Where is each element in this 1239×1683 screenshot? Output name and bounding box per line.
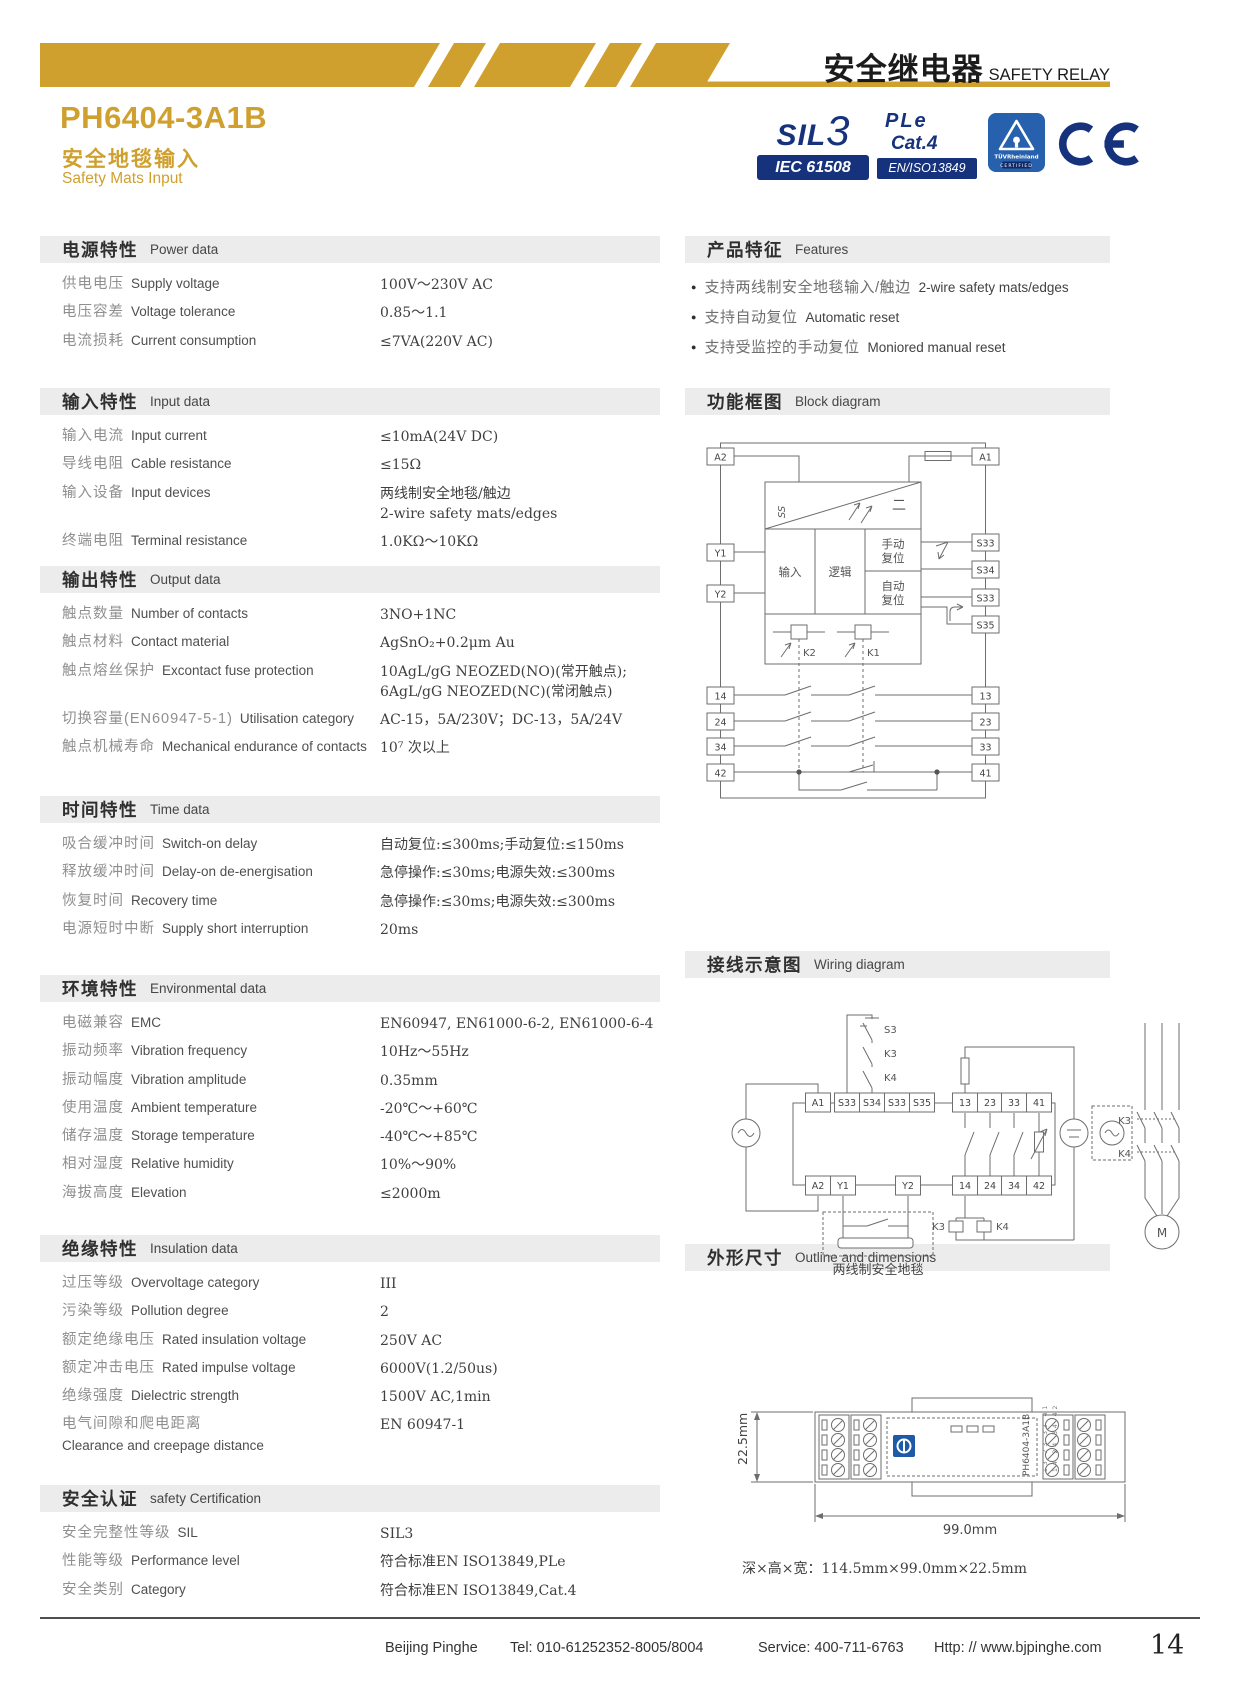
terminal-s35: S35 (913, 1098, 931, 1109)
spec-label-cn: 振动频率 (62, 1043, 124, 1059)
spec-label-en: Cable resistance (131, 456, 232, 471)
spec-label: 触点熔丝保护Excontact fuse protection (62, 662, 380, 680)
spec-label: 振动频率Vibration frequency (62, 1042, 380, 1060)
dimension-note: 深×高×宽：114.5mm×99.0mm×22.5mm (742, 1558, 1027, 1578)
spec-label-cn: 安全类别 (62, 1582, 124, 1598)
footer-website: Http: // www.bjpinghe.com (934, 1640, 1102, 1656)
block-diagram-header: 功能框图 Block diagram (685, 388, 1110, 415)
terminal-y1: Y1 (836, 1181, 849, 1192)
terminal-41: 41 (1033, 1098, 1045, 1109)
spec-label-cn: 电气间隙和爬电距离 (62, 1416, 202, 1432)
spec-row: 污染等级Pollution degree2 (62, 1302, 660, 1322)
height-dimension-label: 22.5mm (735, 1413, 750, 1465)
terminal-23: 23 (979, 718, 991, 729)
spec-label-en: Recovery time (131, 893, 217, 908)
spec-label-cn: 触点熔丝保护 (62, 663, 155, 679)
spec-label-en: Dielectric strength (131, 1388, 239, 1403)
terminal-33: 33 (1008, 1098, 1020, 1109)
spec-label: 振动幅度Vibration amplitude (62, 1071, 380, 1089)
spec-row: 终端电阻Terminal resistance1.0KΩ～10KΩ (62, 532, 660, 552)
terminal-s34: S34 (863, 1098, 881, 1109)
spec-label-cn: 污染等级 (62, 1303, 124, 1319)
spec-label: 安全类别Category (62, 1581, 380, 1599)
wiring-k3-right-label: K3 (1118, 1116, 1131, 1127)
spec-label: 供电电压Supply voltage (62, 275, 380, 293)
spec-row: 电源短时中断Supply short interruption20ms (62, 920, 660, 940)
wiring-k4-right-label: K4 (1118, 1149, 1131, 1160)
spec-row: 振动频率Vibration frequency10Hz～55Hz (62, 1042, 660, 1062)
spec-label-en: Input current (131, 428, 207, 443)
spec-label: 电流损耗Current consumption (62, 332, 380, 350)
spec-label-cn: 振动幅度 (62, 1072, 124, 1088)
terminal-a2: A2 (812, 1181, 825, 1192)
footer-divider (40, 1617, 1200, 1619)
spec-label-cn: 海拔高度 (62, 1185, 124, 1201)
section-title-en: Output data (150, 572, 221, 587)
spec-label-en: Number of contacts (131, 606, 248, 621)
feature-item: ●支持受监控的手动复位Moniored manual reset (691, 336, 1110, 357)
spec-value: 20ms (380, 920, 660, 940)
feature-text-en: 2-wire safety mats/edges (919, 280, 1069, 295)
spec-value: 0.85～1.1 (380, 303, 660, 323)
features-header: 产品特征 Features (685, 236, 1110, 263)
section-title-en: Time data (150, 802, 210, 817)
terminal-33: 33 (979, 743, 991, 754)
spec-label: 性能等级Performance level (62, 1552, 380, 1570)
spec-value: AC-15，5A/230V；DC-13，5A/24V (380, 710, 660, 730)
section-title-cn: 安全认证 (62, 1486, 138, 1511)
sil-word: SIL (776, 119, 826, 153)
terminal-24: 24 (984, 1181, 996, 1192)
spec-row: 电压容差Voltage tolerance0.85～1.1 (62, 303, 660, 323)
spec-label-cn: 安全完整性等级 (62, 1525, 171, 1541)
section-header: 安全认证 safety Certification (40, 1485, 660, 1512)
feature-item: ●支持自动复位Automatic reset (691, 306, 1110, 327)
spec-value: ≤10mA(24V DC) (380, 427, 660, 447)
spec-row: 海拔高度Elevation≤2000m (62, 1184, 660, 1204)
terminal-23: 23 (984, 1098, 996, 1109)
terminal-34: 34 (1008, 1181, 1020, 1192)
spec-label-cn: 相对湿度 (62, 1156, 124, 1172)
terminal-13: 13 (979, 692, 991, 703)
sil3-text: SIL 3 (757, 112, 869, 153)
features-title-en: Features (795, 242, 848, 257)
section-title-en: Environmental data (150, 981, 266, 996)
wiring-diagram: S3 K3 K4 K3 K4 K3 K4 M 两线制安全地毯 A1 S33 S3… (690, 985, 1190, 1290)
spec-row: 安全类别Category符合标准EN ISO13849,Cat.4 (62, 1581, 660, 1601)
spec-column: 电源特性 Power data 供电电压Supply voltage100V～2… (40, 0, 660, 1683)
terminal-s33: S33 (838, 1098, 856, 1109)
relay-k1-label: K1 (867, 648, 880, 659)
spec-label-en: Supply voltage (131, 276, 220, 291)
spec-label-cn: 吸合缓冲时间 (62, 836, 155, 852)
width-dimension-label: 99.0mm (943, 1523, 997, 1538)
spec-label-en: Vibration amplitude (131, 1072, 246, 1087)
terminal-42: 42 (714, 769, 726, 780)
section-title-cn: 输出特性 (62, 567, 138, 592)
spec-value: 急停操作:≤30ms;电源失效:≤300ms (380, 863, 660, 883)
spec-value: 自动复位:≤300ms;手动复位:≤150ms (380, 835, 660, 855)
spec-label-en: Pollution degree (131, 1303, 229, 1318)
spec-label: 触点数量Number of contacts (62, 605, 380, 623)
spec-label: 切换容量(EN60947-5-1)Utilisation category (62, 710, 380, 728)
tuv-rheinland-badge: TÜVRheinland CERTIFIED (988, 113, 1045, 177)
wiring-diagram-title-cn: 接线示意图 (707, 952, 802, 977)
spec-value: 两线制安全地毯/触边2-wire safety mats/edges (380, 484, 660, 525)
spec-value: 3NO+1NC (380, 605, 660, 625)
section-rows: 电磁兼容EMCEN60947, EN61000-6-2, EN61000-6-4… (40, 1002, 660, 1204)
spec-value: EN 60947-1 (380, 1415, 660, 1435)
spec-label: 输入电流Input current (62, 427, 380, 445)
spec-label: 电气间隙和爬电距离Clearance and creepage distance (62, 1415, 380, 1455)
feature-text-en: Automatic reset (805, 310, 899, 325)
spec-label-en: Delay-on de-energisation (162, 864, 313, 879)
footer: Beijing Pinghe Tel: 010-61252352-8005/80… (0, 1640, 1239, 1670)
spec-row: 额定绝缘电压Rated insulation voltage250V AC (62, 1331, 660, 1351)
wiring-k3-top-label: K3 (884, 1049, 897, 1060)
spec-value: ≤15Ω (380, 455, 660, 475)
spec-label-en: Mechanical endurance of contacts (162, 739, 367, 754)
spec-label: 安全完整性等级SIL (62, 1524, 380, 1542)
spec-value: ≤2000m (380, 1184, 660, 1204)
sil-level: 3 (826, 112, 849, 150)
spec-label-en: Utilisation category (240, 711, 354, 726)
terminal-y1: Y1 (714, 549, 727, 560)
spec-label-cn: 输入设备 (62, 485, 124, 501)
spec-label: 输入设备Input devices (62, 484, 380, 502)
ple-label: PLe (877, 110, 977, 133)
spec-label-en: Overvoltage category (131, 1275, 259, 1290)
spec-label-cn: 切换容量(EN60947-5-1) (62, 711, 233, 727)
spec-row: 触点机械寿命Mechanical endurance of contacts10… (62, 738, 660, 758)
tuv-name: TÜVRheinland (994, 154, 1038, 161)
spec-label: 过压等级Overvoltage category (62, 1274, 380, 1292)
section-rows: 过压等级Overvoltage categoryIII污染等级Pollution… (40, 1262, 660, 1455)
brand-title-en: SAFETY RELAY (989, 66, 1110, 85)
spec-row: 过压等级Overvoltage categoryIII (62, 1274, 660, 1294)
spec-label: 储存温度Storage temperature (62, 1127, 380, 1145)
terminal-14: 14 (714, 692, 726, 703)
spec-label-en: Input devices (131, 485, 211, 500)
spec-label: 电磁兼容EMC (62, 1014, 380, 1032)
spec-label-cn: 触点机械寿命 (62, 739, 155, 755)
section-title-cn: 时间特性 (62, 797, 138, 822)
spec-label-cn: 触点数量 (62, 606, 124, 622)
spec-value: ≤7VA(220V AC) (380, 332, 660, 352)
spec-label-cn: 释放缓冲时间 (62, 864, 155, 880)
auto-reset-label-1: 自动 (882, 579, 905, 593)
spec-label-en: EMC (131, 1015, 161, 1030)
device-model-label: PH6404-3A1B (1022, 1414, 1032, 1476)
terminal-a1: A1 (812, 1098, 825, 1109)
tuv-logo-icon: TÜVRheinland CERTIFIED (988, 113, 1045, 172)
feature-item: ●支持两线制安全地毯输入/触边2-wire safety mats/edges (691, 276, 1110, 297)
spec-label-en: Vibration frequency (131, 1043, 247, 1058)
section-rows: 输入电流Input current≤10mA(24V DC)导线电阻Cable … (40, 415, 660, 552)
section-insulation: 绝缘特性 Insulation data 过压等级Overvoltage cat… (40, 1235, 660, 1463)
spec-label-cn: 供电电压 (62, 276, 124, 292)
features-title-cn: 产品特征 (707, 237, 783, 262)
terminal-a2: A2 (714, 453, 727, 464)
spec-label-en: Rated impulse voltage (162, 1360, 296, 1375)
spec-label-en: Rated insulation voltage (162, 1332, 306, 1347)
terminal-y2: Y2 (901, 1181, 914, 1192)
spec-label-cn: 电源短时中断 (62, 921, 155, 937)
wiring-k4-top-label: K4 (884, 1073, 897, 1084)
section-block-diagram: 功能框图 Block diagram (685, 388, 1110, 415)
section-title-cn: 电源特性 (62, 237, 138, 262)
spec-label-cn: 电压容差 (62, 304, 124, 320)
spec-value: 6000V(1.2/50us) (380, 1359, 660, 1379)
block-logic-label: 逻辑 (829, 565, 852, 579)
cat4-label: Cat.4 (877, 133, 977, 155)
spec-value: -40℃～+85℃ (380, 1127, 660, 1147)
footer-service: Service: 400-711-6763 (758, 1640, 904, 1656)
spec-label-en: Performance level (131, 1553, 240, 1568)
spec-row: 绝缘强度Dielectric strength1500V AC,1min (62, 1387, 660, 1407)
spec-label-en: Voltage tolerance (131, 304, 235, 319)
device-terminal-map-2: 14 24 34 42 (1052, 1403, 1059, 1472)
spec-label-cn: 额定绝缘电压 (62, 1332, 155, 1348)
spec-row: 电磁兼容EMCEN60947, EN61000-6-2, EN61000-6-4 (62, 1014, 660, 1034)
spec-label-en: Ambient temperature (131, 1100, 257, 1115)
spec-row: 导线电阻Cable resistance≤15Ω (62, 455, 660, 475)
ce-mark-icon: CE (1052, 118, 1140, 170)
spec-label-en: Switch-on delay (162, 836, 257, 851)
spec-label: 终端电阻Terminal resistance (62, 532, 380, 550)
spec-value: 0.35mm (380, 1071, 660, 1091)
section-rows: 吸合缓冲时间Switch-on delay自动复位:≤300ms;手动复位:≤1… (40, 823, 660, 940)
spec-label-cn: 终端电阻 (62, 533, 124, 549)
section-header: 环境特性 Environmental data (40, 975, 660, 1002)
section-title-en: Power data (150, 242, 218, 257)
section-rows: 安全完整性等级SILSIL3性能等级Performance level符合标准E… (40, 1512, 660, 1601)
wiring-s3-label: S3 (884, 1025, 897, 1036)
section-title-cn: 输入特性 (62, 389, 138, 414)
spec-label: 触点材料Contact material (62, 633, 380, 651)
spec-row: 安全完整性等级SILSIL3 (62, 1524, 660, 1544)
section-title-cn: 环境特性 (62, 976, 138, 1001)
spec-value: 2 (380, 1302, 660, 1322)
spec-value: 250V AC (380, 1331, 660, 1351)
spec-row: 触点材料Contact materialAgSnO₂+0.2μm Au (62, 633, 660, 653)
block-diagram-title-en: Block diagram (795, 394, 881, 409)
terminal-s33b: S33 (976, 594, 994, 605)
spec-value: 10⁷ 次以上 (380, 738, 660, 758)
section-rows: 触点数量Number of contacts3NO+1NC触点材料Contact… (40, 593, 660, 759)
spec-label: 吸合缓冲时间Switch-on delay (62, 835, 380, 853)
spec-value: 10Hz～55Hz (380, 1042, 660, 1062)
spec-label-cn: 使用温度 (62, 1100, 124, 1116)
section-output: 输出特性 Output data 触点数量Number of contacts3… (40, 566, 660, 767)
bullet-icon: ● (691, 282, 696, 292)
feature-text-cn: 支持自动复位 (704, 309, 797, 326)
dc-symbol: 二 (892, 498, 906, 514)
terminal-41: 41 (979, 769, 991, 780)
spec-label-cn: 电流损耗 (62, 333, 124, 349)
spec-value: -20℃～+60℃ (380, 1099, 660, 1119)
spec-value: AgSnO₂+0.2μm Au (380, 633, 660, 653)
spec-row: 输入设备Input devices两线制安全地毯/触边2-wire safety… (62, 484, 660, 525)
spec-label: 海拔高度Elevation (62, 1184, 380, 1202)
footer-company: Beijing Pinghe (385, 1640, 478, 1656)
spec-row: 振动幅度Vibration amplitude0.35mm (62, 1071, 660, 1091)
spec-row: 额定冲击电压Rated impulse voltage6000V(1.2/50u… (62, 1359, 660, 1379)
spec-value: 1500V AC,1min (380, 1387, 660, 1407)
spec-label-cn: 储存温度 (62, 1128, 124, 1144)
spec-value: 符合标准EN ISO13849,PLe (380, 1552, 660, 1572)
terminal-s33b: S33 (888, 1098, 906, 1109)
spec-label-en: Terminal resistance (131, 533, 247, 548)
spec-row: 电流损耗Current consumption≤7VA(220V AC) (62, 332, 660, 352)
manual-reset-label-1: 手动 (882, 537, 905, 551)
section-power: 电源特性 Power data 供电电压Supply voltage100V～2… (40, 236, 660, 360)
terminal-s33a: S33 (976, 539, 994, 550)
spec-row: 释放缓冲时间Delay-on de-energisation急停操作:≤30ms… (62, 863, 660, 883)
spec-label-en: Relative humidity (131, 1156, 234, 1171)
feature-text-en: Moniored manual reset (867, 340, 1005, 355)
brand-title-cn: 安全继电器 (824, 44, 984, 89)
spec-label-en: SIL (178, 1525, 198, 1540)
section-title-en: Input data (150, 394, 210, 409)
section-header: 电源特性 Power data (40, 236, 660, 263)
spec-label-cn: 触点材料 (62, 634, 124, 650)
eniso13849-label: EN/ISO13849 (877, 158, 977, 179)
spec-label-cn: 电磁兼容 (62, 1015, 124, 1031)
feature-text-cn: 支持受监控的手动复位 (704, 339, 859, 356)
wiring-top-terminals: A1 S33 S34 S33 S35 13 23 33 41 (806, 1093, 1052, 1112)
section-title-cn: 绝缘特性 (62, 1236, 138, 1261)
spec-label-cn: 恢复时间 (62, 893, 124, 909)
terminal-42: 42 (1033, 1181, 1045, 1192)
spec-label: 电压容差Voltage tolerance (62, 303, 380, 321)
feature-text-cn: 支持两线制安全地毯输入/触边 (704, 279, 910, 296)
spec-label: 污染等级Pollution degree (62, 1302, 380, 1320)
section-header: 绝缘特性 Insulation data (40, 1235, 660, 1262)
tuv-certified: CERTIFIED (1000, 163, 1033, 169)
spec-label-cn: 额定冲击电压 (62, 1360, 155, 1376)
spec-label-cn: 导线电阻 (62, 456, 124, 472)
terminal-24: 24 (714, 718, 726, 729)
terminal-s35: S35 (976, 621, 994, 632)
spec-label: 恢复时间Recovery time (62, 892, 380, 910)
wiring-diagram-title-en: Wiring diagram (814, 957, 905, 972)
spec-value: III (380, 1274, 660, 1294)
wiring-diagram-header: 接线示意图 Wiring diagram (685, 951, 1110, 978)
terminal-14: 14 (959, 1181, 971, 1192)
block-diagram-title-cn: 功能框图 (707, 389, 783, 414)
wiring-k4-coil-label: K4 (996, 1222, 1009, 1233)
spec-label: 相对湿度Relative humidity (62, 1155, 380, 1173)
spec-row: 电气间隙和爬电距离Clearance and creepage distance… (62, 1415, 660, 1455)
section-time: 时间特性 Time data 吸合缓冲时间Switch-on delay自动复位… (40, 796, 660, 948)
spec-label-cn: 性能等级 (62, 1553, 124, 1569)
section-title-en: safety Certification (150, 1491, 261, 1506)
section-title-en: Insulation data (150, 1241, 238, 1256)
spec-label: 使用温度Ambient temperature (62, 1099, 380, 1117)
section-certification: 安全认证 safety Certification 安全完整性等级SILSIL3… (40, 1485, 660, 1609)
spec-row: 恢复时间Recovery time急停操作:≤30ms;电源失效:≤300ms (62, 892, 660, 912)
spec-row: 触点熔丝保护Excontact fuse protection10AgL/gG … (62, 662, 660, 703)
terminal-y2: Y2 (714, 590, 727, 601)
spec-label-cn: 输入电流 (62, 428, 124, 444)
page-number: 14 (1150, 1630, 1184, 1661)
spec-value: 10%～90% (380, 1155, 660, 1175)
spec-row: 性能等级Performance level符合标准EN ISO13849,PLe (62, 1552, 660, 1572)
spec-value: 符合标准EN ISO13849,Cat.4 (380, 1581, 660, 1601)
spec-row: 储存温度Storage temperature-40℃～+85℃ (62, 1127, 660, 1147)
features-list: ●支持两线制安全地毯输入/触边2-wire safety mats/edges●… (685, 263, 1110, 357)
spec-label-en: Clearance and creepage distance (62, 1437, 380, 1455)
spec-label-en: Supply short interruption (162, 921, 308, 936)
section-rows: 供电电压Supply voltage100V～230V AC电压容差Voltag… (40, 263, 660, 352)
motor-label: M (1157, 1226, 1167, 1240)
sil3-badge: SIL 3 IEC 61508 (757, 112, 869, 180)
spec-value: 100V～230V AC (380, 275, 660, 295)
spec-label: 绝缘强度Dielectric strength (62, 1387, 380, 1405)
spec-row: 吸合缓冲时间Switch-on delay自动复位:≤300ms;手动复位:≤1… (62, 835, 660, 855)
section-header: 输入特性 Input data (40, 388, 660, 415)
spec-value: SIL3 (380, 1524, 660, 1544)
spec-row: 相对湿度Relative humidity10%～90% (62, 1155, 660, 1175)
spec-row: 切换容量(EN60947-5-1)Utilisation categoryAC-… (62, 710, 660, 730)
spec-label-en: Elevation (131, 1185, 187, 1200)
bullet-icon: ● (691, 342, 696, 352)
spec-label: 电源短时中断Supply short interruption (62, 920, 380, 938)
spec-row: 触点数量Number of contacts3NO+1NC (62, 605, 660, 625)
spec-label: 触点机械寿命Mechanical endurance of contacts (62, 738, 380, 756)
spec-label: 额定冲击电压Rated impulse voltage (62, 1359, 380, 1377)
spec-value: 1.0KΩ～10KΩ (380, 532, 660, 552)
section-wiring-diagram: 接线示意图 Wiring diagram (685, 951, 1110, 978)
spec-value: 10AgL/gG NEOZED(NO)(常开触点);6AgL/gG NEOZED… (380, 662, 660, 703)
spec-row: 输入电流Input current≤10mA(24V DC) (62, 427, 660, 447)
outline-drawing: PH6404-3A1B 13 23 33 41 14 24 34 42 22.5… (735, 1388, 1135, 1538)
section-header: 时间特性 Time data (40, 796, 660, 823)
spec-label-cn: 过压等级 (62, 1275, 124, 1291)
spec-label-cn: 绝缘强度 (62, 1388, 124, 1404)
spec-label: 释放缓冲时间Delay-on de-energisation (62, 863, 380, 881)
spec-label: 额定绝缘电压Rated insulation voltage (62, 1331, 380, 1349)
bullet-icon: ● (691, 312, 696, 322)
spec-value: EN60947, EN61000-6-2, EN61000-6-4 (380, 1014, 660, 1034)
section-header: 输出特性 Output data (40, 566, 660, 593)
spec-label-en: Storage temperature (131, 1128, 255, 1143)
terminal-a1: A1 (979, 453, 992, 464)
manual-reset-label-2: 复位 (882, 551, 905, 565)
mat-caption: 两线制安全地毯 (832, 1262, 923, 1278)
terminal-34: 34 (714, 743, 726, 754)
auto-reset-label-2: 复位 (882, 593, 905, 607)
brand-title: 安全继电器 SAFETY RELAY (824, 44, 1110, 89)
spec-label-en: Excontact fuse protection (162, 663, 314, 678)
section-input: 输入特性 Input data 输入电流Input current≤10mA(2… (40, 388, 660, 560)
ple-cat4-badge: PLe Cat.4 EN/ISO13849 (877, 110, 977, 179)
spec-label: 导线电阻Cable resistance (62, 455, 380, 473)
footer-tel: Tel: 010-61252352-8005/8004 (510, 1640, 704, 1656)
spec-value: 急停操作:≤30ms;电源失效:≤300ms (380, 892, 660, 912)
wiring-k3-coil-label: K3 (932, 1222, 945, 1233)
block-input-label: 输入 (779, 565, 802, 579)
spec-label-en: Category (131, 1582, 186, 1597)
terminal-13: 13 (959, 1098, 971, 1109)
device-terminal-map-1: 13 23 33 41 (1042, 1403, 1049, 1472)
iec61508-label: IEC 61508 (757, 155, 869, 180)
led-indicators (951, 1426, 994, 1432)
spec-row: 供电电压Supply voltage100V～230V AC (62, 275, 660, 295)
spec-label-en: Current consumption (131, 333, 256, 348)
datasheet-page: 安全继电器 SAFETY RELAY PH6404-3A1B 安全地毯输入 Sa… (0, 0, 1239, 1683)
